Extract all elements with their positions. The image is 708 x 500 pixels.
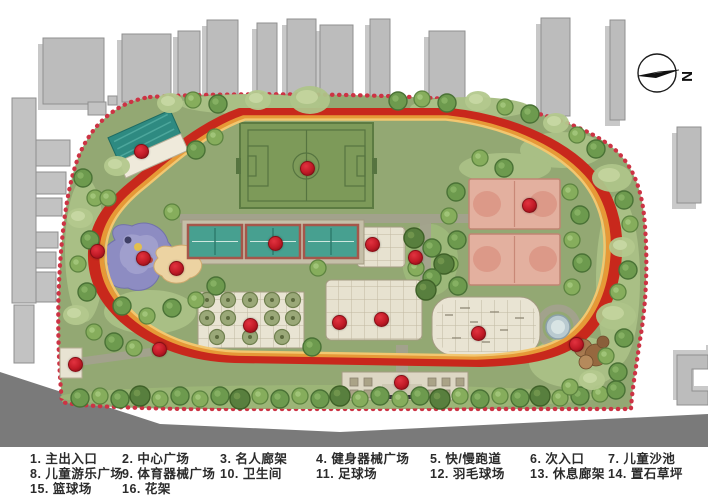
badminton-courts	[188, 225, 358, 258]
park-master-plan: N 1. 主出入口2. 中心广场3. 名人廊架4. 健身器械广场5. 快/慢跑道…	[0, 0, 708, 500]
legend-item: 10. 卫生间	[220, 463, 282, 482]
compass-label: N	[678, 71, 695, 82]
legend-item: 13. 休息廊架	[530, 463, 605, 482]
pergola-plaza	[198, 292, 304, 348]
pond	[546, 315, 570, 339]
legend-item: 15. 篮球场	[30, 478, 92, 497]
legend-item: 16. 花架	[122, 478, 171, 497]
main-entrance-pad	[60, 348, 82, 378]
fitness-plaza	[432, 297, 540, 355]
football-field	[236, 123, 377, 208]
legend-item: 14. 置石草坪	[608, 463, 683, 482]
plan-graphic: N	[0, 0, 708, 500]
legend-item: 12. 羽毛球场	[430, 463, 505, 482]
legend-item: 11. 足球场	[316, 463, 377, 482]
north-compass: N	[638, 54, 695, 92]
legend: 1. 主出入口2. 中心广场3. 名人廊架4. 健身器械广场5. 快/慢跑道6.…	[0, 448, 708, 500]
